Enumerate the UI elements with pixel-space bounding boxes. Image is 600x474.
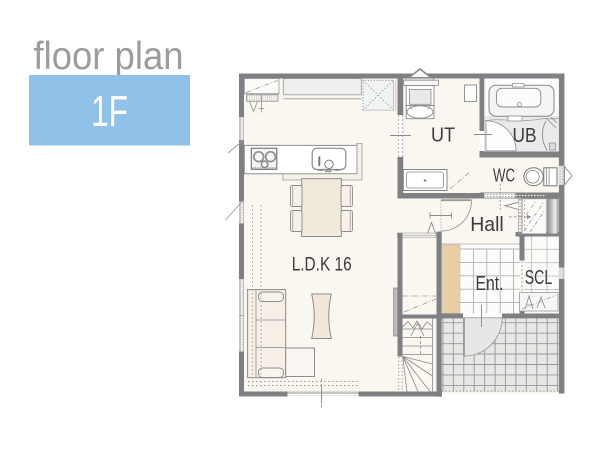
svg-text:Ent.: Ent. xyxy=(476,273,504,295)
svg-text:SCL: SCL xyxy=(525,267,553,289)
svg-text:UT: UT xyxy=(431,124,455,147)
svg-text:1F: 1F xyxy=(91,87,128,136)
svg-text:WC: WC xyxy=(493,166,515,186)
svg-text:UB: UB xyxy=(513,124,537,147)
svg-text:Hall: Hall xyxy=(470,213,504,236)
svg-text:floor plan: floor plan xyxy=(34,35,184,78)
svg-text:L.D.K 16: L.D.K 16 xyxy=(292,254,352,276)
